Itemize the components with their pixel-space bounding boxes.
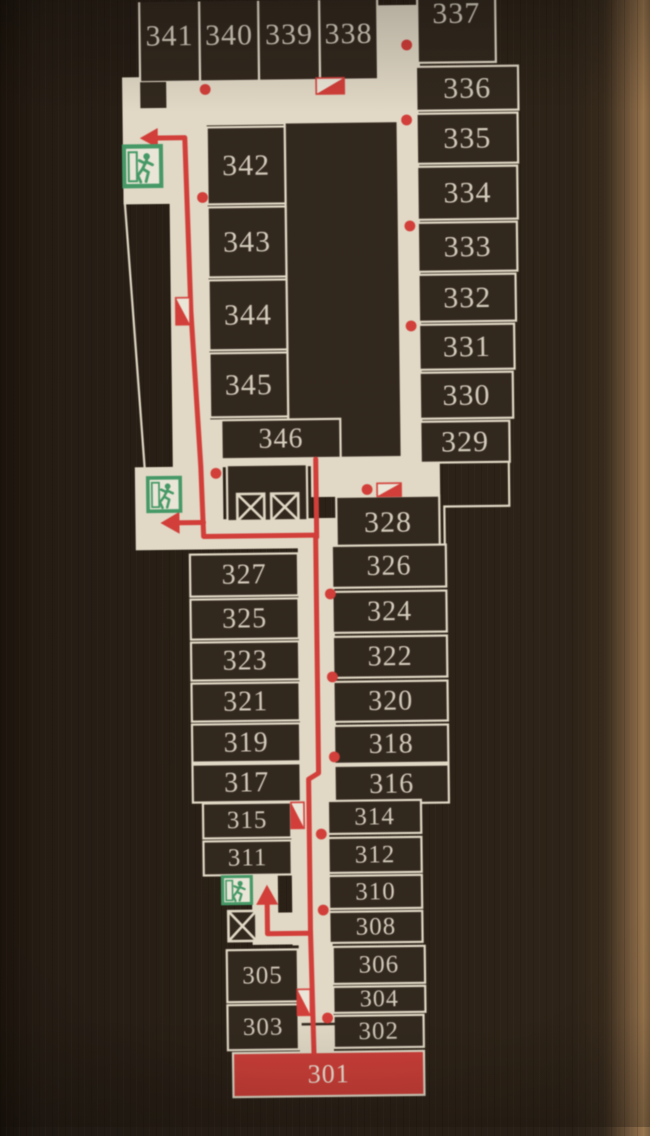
room-number: 343 [223, 225, 271, 259]
room-number: 329 [441, 425, 489, 459]
room-number: 339 [265, 18, 313, 52]
room-325: 325 [190, 598, 298, 639]
room-323: 323 [191, 641, 299, 680]
exit-sign [221, 875, 253, 905]
room-number: 321 [223, 686, 268, 718]
room-number: 320 [368, 685, 413, 717]
room-number: 312 [355, 841, 396, 868]
room-number: 306 [358, 951, 399, 978]
room-346: 346 [221, 419, 340, 459]
room-number: 342 [222, 149, 270, 183]
room-number: 328 [364, 505, 412, 539]
room-number: 317 [224, 767, 269, 799]
room-number: 303 [243, 1014, 284, 1041]
room-number: 301 [308, 1059, 350, 1089]
room-344: 344 [209, 279, 288, 350]
corridor-floor [252, 912, 312, 945]
room-306: 306 [333, 946, 425, 984]
room-number: 302 [358, 1018, 399, 1045]
room-number: 336 [443, 71, 491, 105]
room-338: 338 [319, 0, 378, 80]
boundary-line [444, 462, 510, 547]
room-331: 331 [419, 324, 515, 370]
room-number: 326 [366, 550, 411, 582]
room-number: 322 [367, 641, 412, 673]
room-343: 343 [208, 206, 287, 277]
floor-plan-canvas: 3413403393383373363353343333323313303293… [0, 0, 650, 1131]
room-304: 304 [333, 986, 425, 1013]
room-321: 321 [191, 682, 299, 721]
room-number: 340 [205, 18, 253, 52]
room-number: 311 [228, 844, 268, 871]
room-326: 326 [332, 545, 447, 588]
hydrant-marker [291, 802, 304, 828]
room-332: 332 [418, 274, 516, 322]
room-342: 342 [207, 126, 286, 204]
room-number: 346 [258, 423, 303, 455]
core-block [140, 82, 166, 108]
room-345: 345 [209, 352, 288, 417]
room-number: 344 [224, 298, 272, 332]
room-number: 305 [242, 962, 283, 989]
core-block [285, 121, 402, 458]
room-number: 331 [443, 330, 491, 364]
room-302: 302 [334, 1015, 424, 1048]
room-339: 339 [258, 0, 320, 81]
room-number: 338 [324, 17, 372, 51]
room-305: 305 [227, 949, 299, 1002]
hydrant-marker [316, 78, 344, 94]
room-315: 315 [203, 802, 291, 838]
photo-of-hotel-evacuation-floor-map: { "scene": { "type": "hotel-floor-evacua… [0, 0, 650, 1127]
room-341: 341 [139, 0, 200, 82]
room-333: 333 [418, 222, 518, 272]
elevator-icon [237, 494, 264, 521]
room-340: 340 [199, 0, 259, 81]
room-335: 335 [417, 113, 519, 164]
room-number: 327 [221, 559, 266, 591]
room-number: 304 [360, 986, 399, 1012]
elevator-icon [271, 493, 298, 520]
room-number: 330 [442, 378, 490, 412]
room-336: 336 [416, 66, 519, 111]
route-line [316, 459, 317, 537]
hydrant-marker [377, 483, 401, 496]
room-number: 315 [227, 807, 268, 834]
room-322: 322 [333, 636, 447, 678]
room-320: 320 [333, 681, 447, 722]
room-number: 332 [443, 281, 491, 315]
room-334: 334 [417, 166, 518, 220]
room-number: 308 [356, 913, 397, 940]
room-number: 334 [443, 176, 491, 210]
room-number: 319 [223, 727, 268, 759]
room-number: 323 [222, 645, 267, 677]
exit-sign [146, 476, 182, 513]
room-number: 316 [369, 768, 414, 800]
room-number: 337 [432, 0, 480, 30]
corridor-floor [134, 79, 419, 126]
room-number: 325 [222, 603, 267, 635]
boundary-line [125, 198, 145, 470]
room-number: 324 [367, 596, 412, 628]
room-number: 341 [145, 19, 193, 53]
room-312: 312 [328, 837, 421, 873]
elevator-icon [228, 911, 256, 941]
room-number: 345 [225, 368, 273, 402]
room-330: 330 [420, 372, 514, 419]
room-number: 318 [369, 728, 414, 760]
evacuation-map-sign: 3413403393383373363353343333323313303293… [0, 0, 650, 1131]
room-316: 316 [334, 765, 448, 804]
hydrant-marker [297, 989, 310, 1015]
room-310: 310 [329, 875, 422, 909]
room-number: 335 [443, 121, 491, 155]
room-308: 308 [329, 911, 422, 943]
room-324: 324 [332, 591, 446, 633]
room-328: 328 [336, 496, 440, 549]
hydrant-marker [176, 298, 190, 325]
room-329: 329 [420, 421, 509, 463]
room-337: 337 [417, 0, 496, 63]
room-303: 303 [227, 1004, 299, 1050]
room-number: 310 [355, 878, 396, 905]
room-314: 314 [328, 800, 421, 834]
room-number: 333 [443, 230, 491, 264]
room-311: 311 [203, 840, 291, 875]
room-319: 319 [192, 723, 300, 762]
exit-sign [122, 144, 164, 188]
room-number: 314 [354, 803, 395, 830]
room-327: 327 [190, 553, 299, 596]
room-317: 317 [192, 763, 300, 802]
room-301: 301 [233, 1051, 425, 1097]
room-318: 318 [334, 725, 448, 764]
